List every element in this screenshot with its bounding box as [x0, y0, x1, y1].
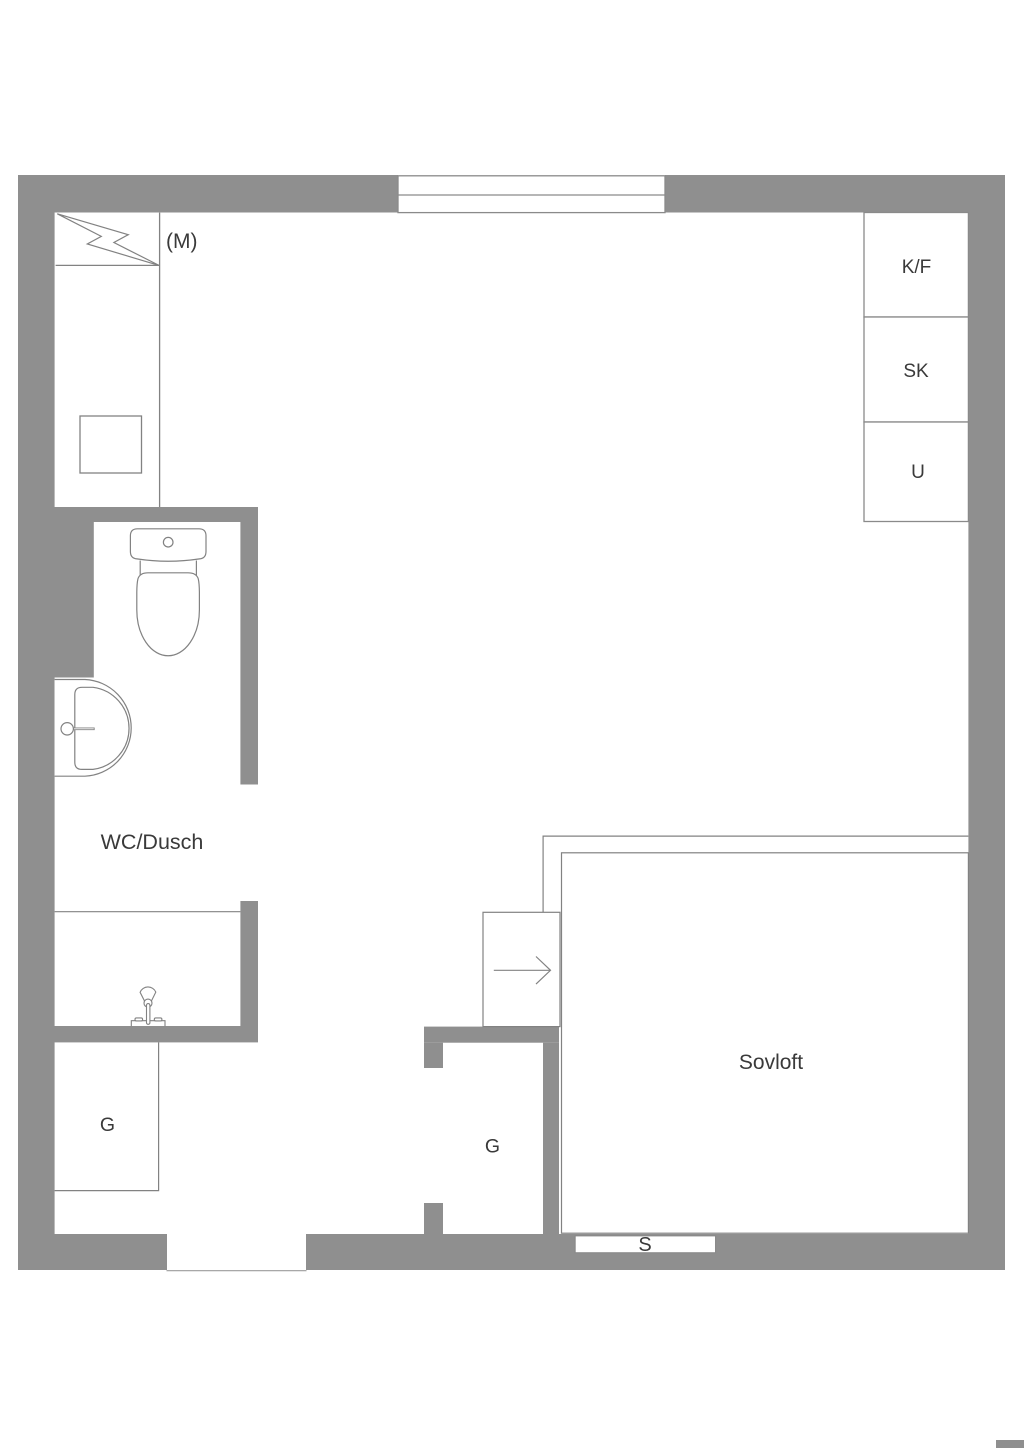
svg-text:G: G — [100, 1114, 115, 1136]
svg-text:Sovloft: Sovloft — [739, 1051, 803, 1074]
svg-text:(M): (M) — [166, 230, 197, 253]
svg-text:SK: SK — [903, 361, 929, 382]
svg-text:WC/Dusch: WC/Dusch — [101, 830, 204, 854]
svg-text:K/F: K/F — [902, 257, 932, 278]
svg-text:U: U — [911, 462, 925, 483]
svg-text:S: S — [638, 1234, 651, 1256]
svg-text:G: G — [485, 1136, 500, 1158]
